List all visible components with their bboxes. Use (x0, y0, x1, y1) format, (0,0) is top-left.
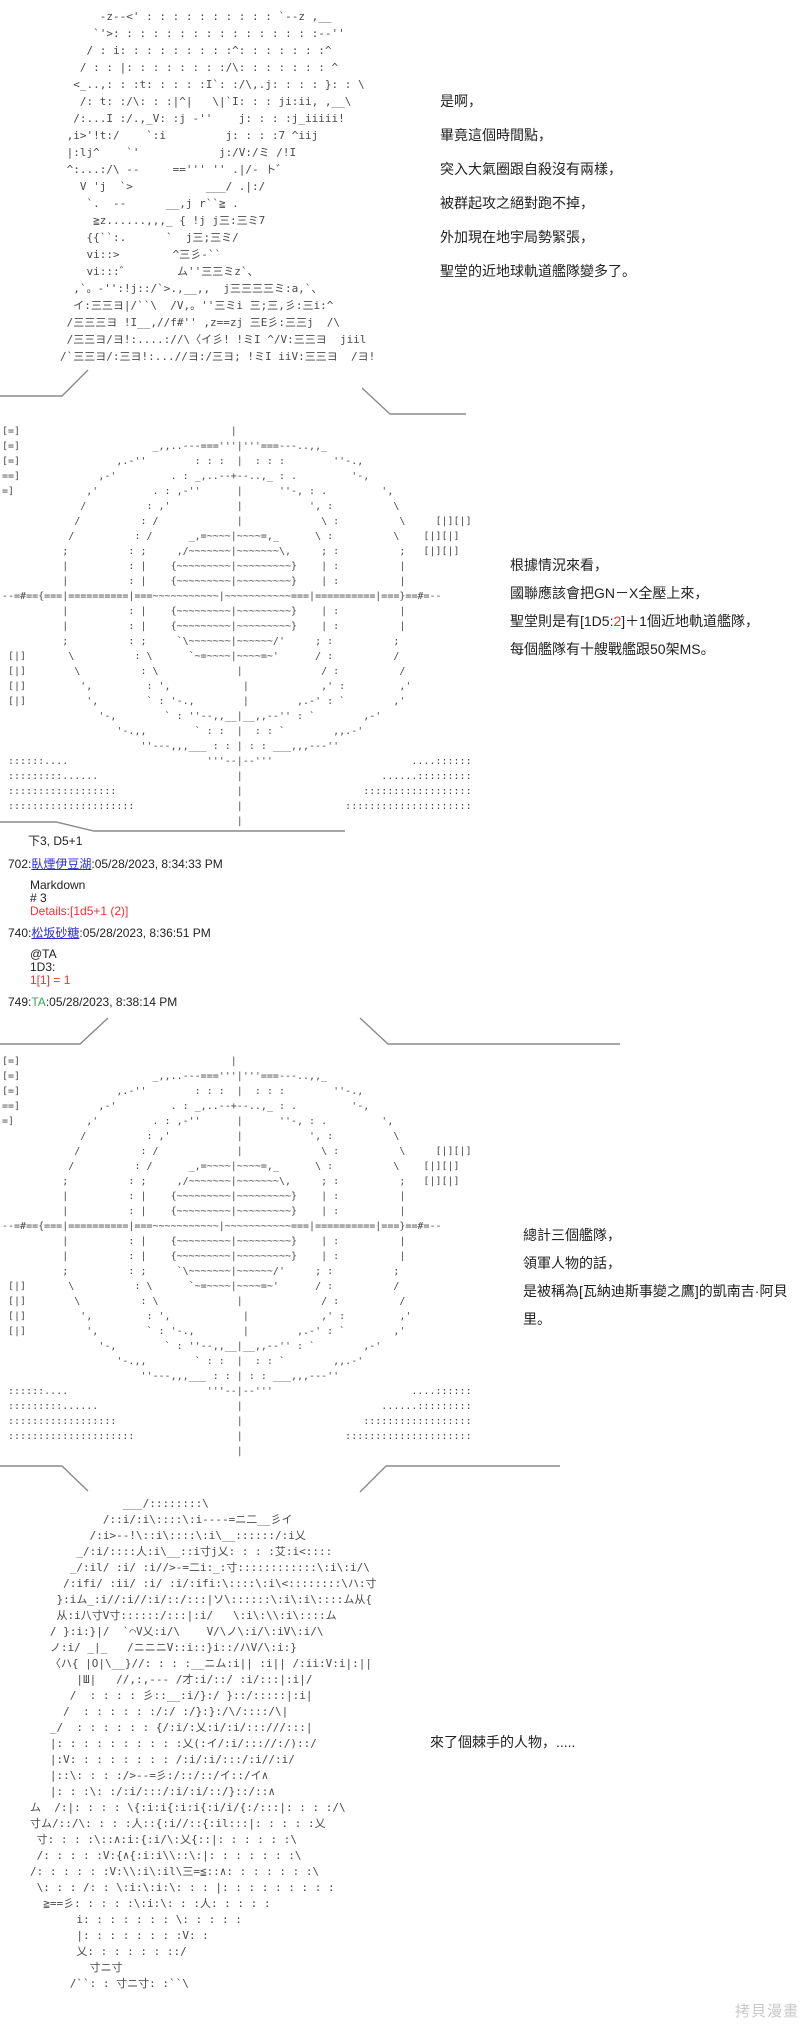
dice-instruction-note: 下3, D5+1 (28, 834, 428, 848)
dialogue-line: 畢竟這個時間點， (440, 118, 636, 152)
scene-break-4-left (0, 1466, 88, 1491)
dice-result-line: 1[1] = 1 (30, 974, 428, 987)
quote-line: Markdown (30, 879, 428, 892)
dialogue-line: 根據情況來看， (510, 551, 759, 579)
quote-line: @TA (30, 948, 428, 961)
ascii-art-character-top: -z--<' : : : : : : : : : : `--z ,__ `'>:… (60, 8, 375, 365)
dialogue-line: 總計三個艦隊， (523, 1221, 800, 1249)
scene-break-3-left (0, 1018, 108, 1044)
dice-text-prefix: 聖堂則是有[1D5: (510, 613, 613, 629)
quote-line: 1D3: (30, 961, 428, 974)
scene-break-4-right (360, 1466, 560, 1492)
ascii-art-orbital-map-2: [=] | [=] _,,..---==='''|'''===---..,,_ … (2, 1054, 472, 1459)
page: -z--<' : : : : : : : : : : `--z ,__ `'>:… (0, 0, 800, 2031)
dialogue-line: 聖堂的近地球軌道艦隊變多了。 (440, 254, 636, 288)
dialogue-line-dice: 聖堂則是有[1D5:2]＋1個近地軌道艦隊， (510, 607, 759, 635)
post-header-702: 702:臥煙伊豆湖:05/28/2023, 8:34:33 PM (8, 857, 428, 871)
post-number: 749: (8, 995, 31, 1009)
site-watermark: 拷貝漫畫 (735, 2000, 799, 2021)
dialogue-line: 被群起攻之絕對跑不掉， (440, 186, 636, 220)
dialogue-line: 是被稱為[瓦納迪斯事變之鷹]的凱南吉·阿貝里。 (523, 1277, 800, 1305)
dice-result-line: Details:[1d5+1 (2)] (30, 905, 428, 918)
post-timestamp: :05/28/2023, 8:36:51 PM (79, 926, 210, 940)
dialogue-line: 國聯應該會把GN－X全壓上來， (510, 579, 759, 607)
dialogue-line: 來了個棘手的人物，..... (430, 1732, 575, 1752)
scene-break-3-right (360, 1018, 620, 1044)
dialogue-line: 外加現在地宇局勢緊張， (440, 220, 636, 254)
post-quote-740: @TA 1D3: 1[1] = 1 (30, 948, 428, 987)
ascii-art-orbital-map-1: [=] | [=] _,,..---==='''|'''===---..,,_ … (2, 424, 472, 829)
dialogue-line: 突入大氣圈跟自殺沒有兩樣， (440, 152, 636, 186)
dialogue-block-1: 是啊， 畢竟這個時間點， 突入大氣圈跟自殺沒有兩樣， 被群起攻之絕對跑不掉， 外… (440, 84, 636, 288)
post-number: 740: (8, 926, 31, 940)
dialogue-block-2: 根據情況來看， 國聯應該會把GN－X全壓上來， 聖堂則是有[1D5:2]＋1個近… (510, 551, 759, 663)
post-header-749: 749:TA:05/28/2023, 8:38:14 PM (8, 995, 428, 1009)
scene-break-1-right (362, 388, 466, 414)
post-author-ta: TA (31, 995, 45, 1009)
dialogue-block-3: 總計三個艦隊， 領軍人物的話， 是被稱為[瓦納迪斯事變之鷹]的凱南吉·阿貝里。 (523, 1221, 800, 1305)
post-quote-702: Markdown # 3 Details:[1d5+1 (2)] (30, 879, 428, 918)
dialogue-line: 領軍人物的話， (523, 1249, 800, 1277)
dice-text-suffix: ]＋1個近地軌道艦隊， (621, 613, 759, 629)
post-timestamp: :05/28/2023, 8:34:33 PM (91, 857, 222, 871)
dialogue-line: 是啊， (440, 84, 636, 118)
dialogue-block-4: 來了個棘手的人物，..... (430, 1732, 575, 1752)
post-author-link[interactable]: 松坂砂糖 (31, 926, 79, 940)
post-metadata-block: 下3, D5+1 702:臥煙伊豆湖:05/28/2023, 8:34:33 P… (8, 834, 428, 1017)
post-number: 702: (8, 857, 31, 871)
dialogue-line: 每個艦隊有十艘戰艦跟50架MS。 (510, 635, 759, 663)
post-header-740: 740:松坂砂糖:05/28/2023, 8:36:51 PM (8, 926, 428, 940)
post-timestamp: :05/28/2023, 8:38:14 PM (46, 995, 177, 1009)
post-author-link[interactable]: 臥煙伊豆湖 (31, 857, 91, 871)
ascii-art-character-bottom: ___/::::::::\ /::i/:i\::::\:i----=ニ二__彡イ… (30, 1496, 377, 1992)
scene-break-1-left (0, 370, 88, 396)
